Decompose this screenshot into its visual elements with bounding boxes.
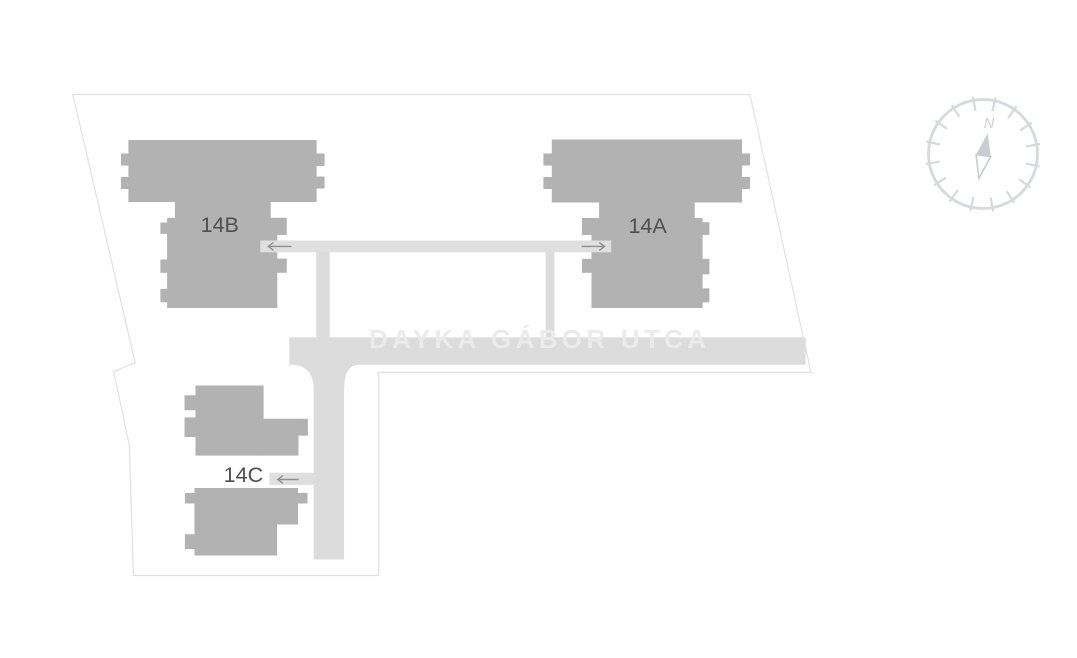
- svg-text:14A: 14A: [628, 214, 667, 238]
- svg-text:14B: 14B: [201, 213, 239, 237]
- svg-text:DAYKA GÁBOR UTCA: DAYKA GÁBOR UTCA: [369, 324, 710, 354]
- svg-text:N: N: [984, 116, 995, 132]
- svg-text:14C: 14C: [224, 463, 263, 487]
